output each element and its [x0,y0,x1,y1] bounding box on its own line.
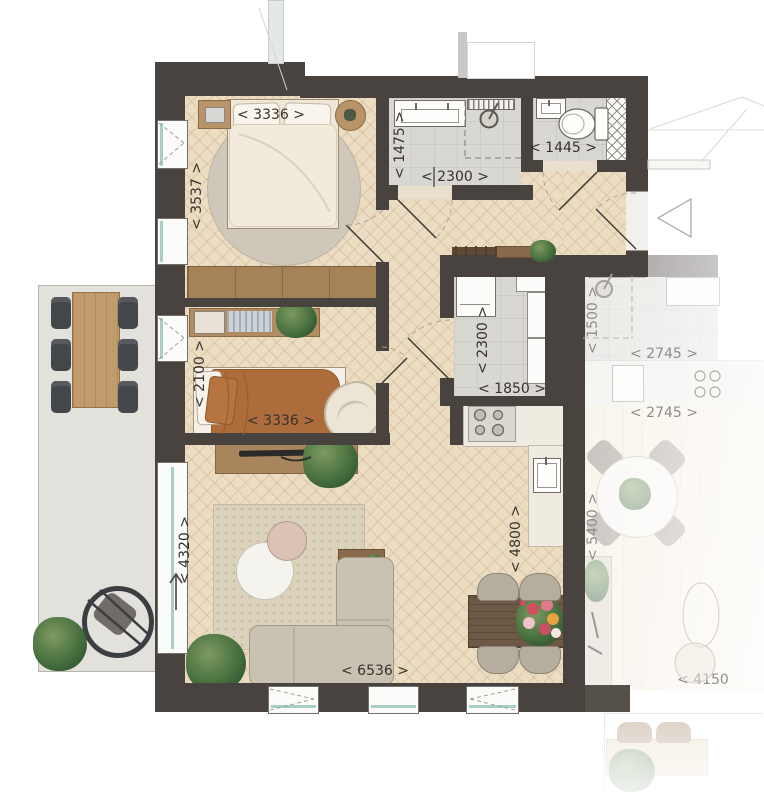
wall-entry-upper [626,98,648,191]
wall-kitchen-stub [450,396,463,445]
dim-bedroom2-depth: < 2100 > [192,324,208,424]
wall-bedroom2-right-top [376,306,389,351]
bedroom2-window [157,315,188,362]
dim-living-width: < 6536 > [325,663,425,679]
wall-bedroom2-bottom [182,433,390,445]
living-window [368,686,419,714]
dim-bathroom-width: < 2300 > [405,169,505,185]
shelf-plant [530,240,556,262]
context-column [458,32,467,78]
wall-storage-right [545,277,563,396]
bedroom1-window [157,218,188,265]
dim-living-depth: < 4320 > [177,500,193,600]
dim-kitchen-wall-depth: < 4800 > [508,489,524,589]
dim-wc-width: < 1445 > [513,140,613,156]
dim-neighbor-bathroom-depth: < 1500 > [585,270,601,370]
wall-bedroom2-right-bottom [376,383,389,435]
dim-bedroom2-width: < 3336 > [231,413,331,429]
upper-window-context [268,0,284,64]
dim-bedroom1-depth: < 3537 > [189,146,205,246]
dim-neighbor-living-width: < 4150 [677,672,764,688]
wc-threshold [543,161,597,171]
dim-neighbor-kitchen-width: < 2745 > [614,405,714,421]
wall-top [300,76,648,98]
wall-bathroom-bottom-right [452,185,533,200]
dim-storage-width: < 1850 > [462,381,562,397]
context-shaft-above [467,42,535,79]
bedroom1-window [157,120,188,169]
living-window [466,686,519,714]
entrance-threshold [626,191,648,251]
wall-bedroom-divider [185,298,389,307]
wall-right [563,255,585,712]
neighbor-fade [585,255,764,712]
wall-wc-bottom-right [597,160,626,172]
wall-wc-bottom-left [521,160,543,172]
dim-neighbor-living-depth: < 5400 > [585,477,601,577]
living-window [268,686,319,714]
wall-storage-left-top [440,277,454,318]
neighbor-wall-piece [580,685,630,712]
dim-neighbor-bathroom-width: < 2745 > [614,346,714,362]
dim-bedroom1-width: < 3336 > [221,107,321,123]
neighbor-fade-bottom [585,700,764,792]
apartment-floor-plan: < 1500 > < 2745 > < 2745 > < 5400 > < 41… [0,0,764,792]
wall-entry-horizontal [563,255,648,277]
dim-storage-depth: < 2300 > [475,290,491,390]
